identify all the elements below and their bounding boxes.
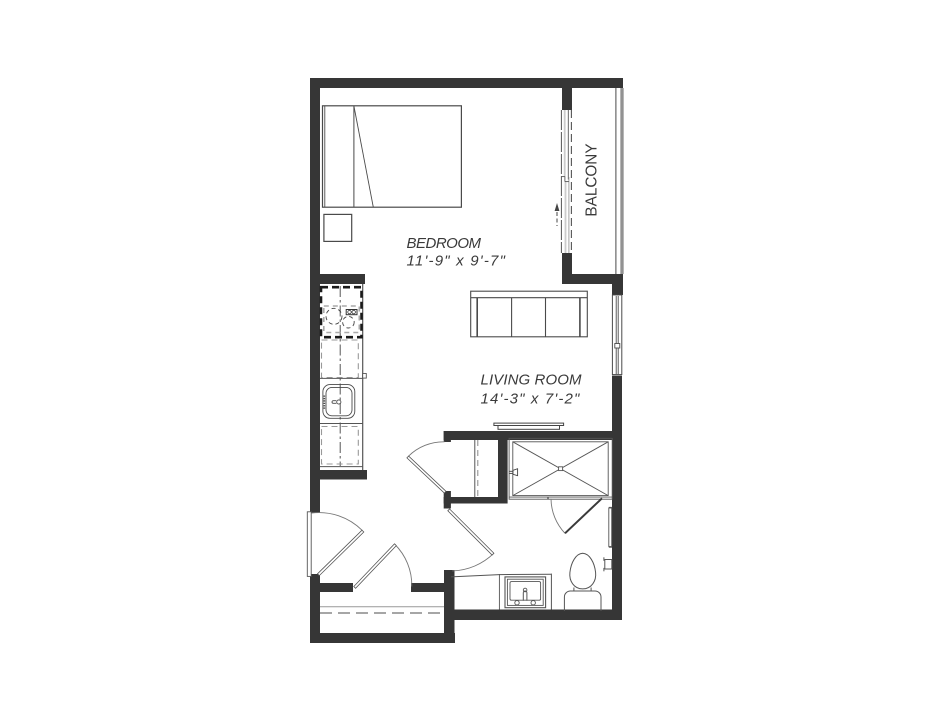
svg-text:14'-3" x 7'-2": 14'-3" x 7'-2": [481, 391, 581, 408]
svg-text:LIVING ROOM: LIVING ROOM: [481, 372, 583, 389]
svg-text:BEDROOM: BEDROOM: [407, 235, 482, 252]
svg-text:BALCONY: BALCONY: [583, 143, 600, 216]
svg-text:11'-9" x 9'-7": 11'-9" x 9'-7": [407, 253, 507, 270]
